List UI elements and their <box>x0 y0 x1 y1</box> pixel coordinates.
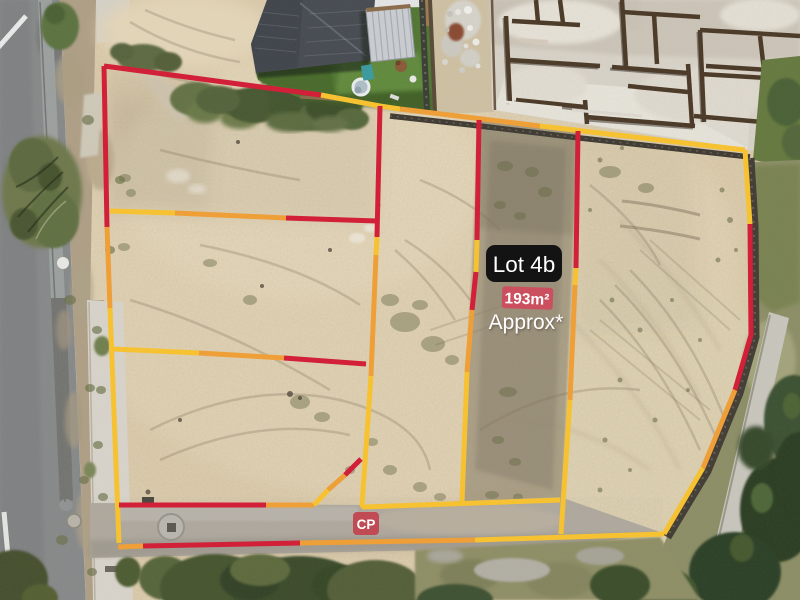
svg-text:193m²: 193m² <box>504 290 549 309</box>
svg-text:CP: CP <box>357 517 376 532</box>
svg-text:Approx*: Approx* <box>489 311 564 334</box>
svg-text:Lot 4b: Lot 4b <box>493 252 556 277</box>
